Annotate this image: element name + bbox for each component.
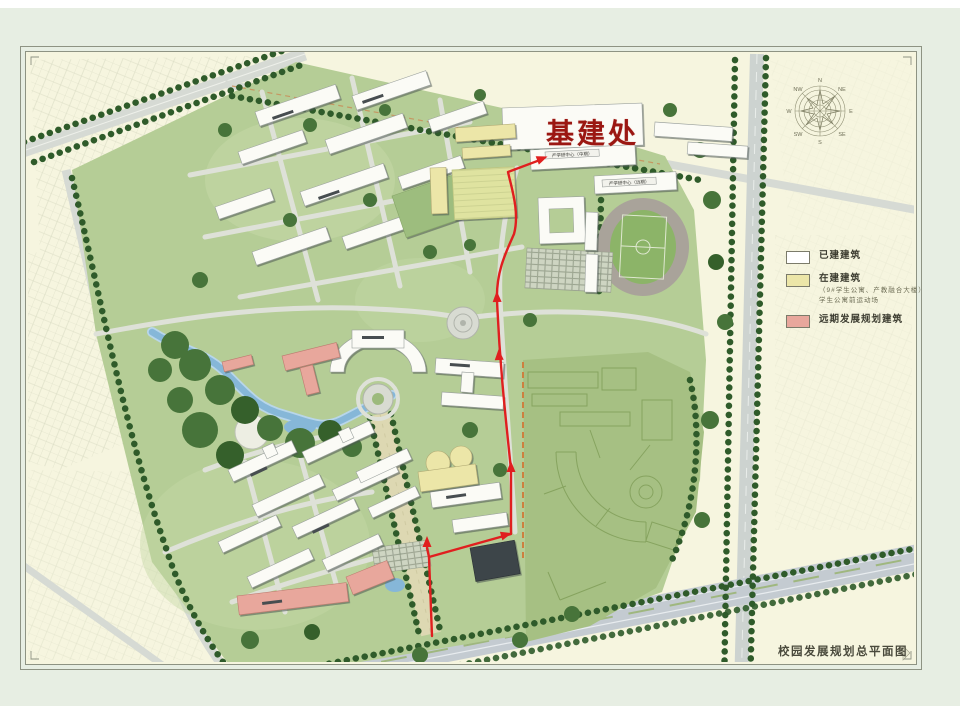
legend-note-line1: （9#学生公寓、产教融合大楼）	[819, 287, 926, 295]
legend-label-under-construction: 在建建筑 （9#学生公寓、产教融合大楼） 学生公寓前运动场	[819, 273, 926, 305]
compass-se: SE	[838, 132, 846, 138]
legend-item-built: 已建建筑	[786, 250, 936, 264]
built-swatch	[786, 251, 810, 264]
compass-w: W	[786, 109, 792, 115]
sports-courts-grid	[525, 248, 613, 292]
wind-rose-polygon	[801, 90, 840, 130]
screenshot-stage: 产学研中心（中期） 产学研中心（远期）	[0, 0, 960, 720]
student-apartment-sports-field	[452, 167, 517, 220]
wind-rose-compass: N NE E SE S SW W NW	[783, 74, 857, 148]
planned-swatch	[786, 315, 810, 328]
legend: 已建建筑 在建建筑 （9#学生公寓、产教融合大楼） 学生公寓前运动场 远期发展规…	[786, 250, 936, 337]
legend-label-planned: 远期发展规划建筑	[819, 314, 903, 326]
jijianchu-annotation: 基建处	[546, 112, 676, 152]
compass-n: N	[818, 78, 822, 84]
plan-title: 校园发展规划总平面图	[770, 643, 908, 659]
compass-nw: NW	[793, 87, 803, 93]
library-circular-plaza	[447, 307, 479, 339]
legend-note-line2: 学生公寓前运动场	[819, 297, 926, 305]
legend-label-built: 已建建筑	[819, 250, 861, 262]
legend-label-under-construction-text: 在建建筑	[819, 273, 861, 284]
compass-ne: NE	[838, 87, 846, 93]
legend-item-under-construction: 在建建筑 （9#学生公寓、产教融合大楼） 学生公寓前运动场	[786, 273, 936, 305]
compass-e: E	[849, 109, 853, 115]
under-construction-swatch	[786, 274, 810, 287]
legend-item-planned: 远期发展规划建筑	[786, 314, 936, 328]
compass-sw: SW	[794, 132, 804, 138]
compass-s: S	[818, 140, 822, 146]
